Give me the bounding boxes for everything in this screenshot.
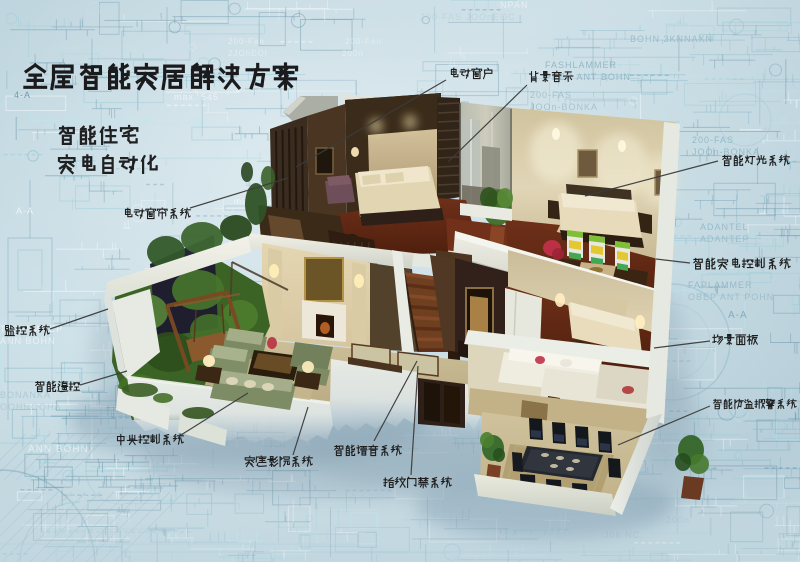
svg-text:OBEP ANT POHN: OBEP ANT POHN [688, 292, 774, 302]
svg-text:PEER ANT BOHN: PEER ANT BOHN [545, 72, 631, 82]
svg-text:OOHNOOHA: OOHNOOHA [0, 402, 62, 412]
svg-text:ADANTEP: ADANTEP [700, 234, 750, 244]
svg-text:ADANTEL: ADANTEL [700, 222, 749, 232]
svg-text:A-A: A-A [16, 206, 34, 216]
svg-text:FASHLAMMER: FASHLAMMER [545, 60, 617, 70]
svg-text:ANN BOHN: ANN BOHN [0, 336, 56, 346]
svg-text:max. 545: max. 545 [174, 92, 219, 102]
svg-text:A-A: A-A [728, 310, 748, 321]
svg-text:200-FAS: 200-FAS [692, 135, 734, 145]
svg-text:BONANKA: BONANKA [0, 390, 51, 400]
svg-text:JOOn-BONKA: JOOn-BONKA [692, 147, 760, 157]
svg-text:200-FAS: 200-FAS [530, 90, 572, 100]
svg-text:ANN BOHN: ANN BOHN [28, 444, 89, 455]
svg-text:FAPLAMMER: FAPLAMMER [688, 280, 753, 290]
svg-text:4-A: 4-A [14, 90, 31, 100]
